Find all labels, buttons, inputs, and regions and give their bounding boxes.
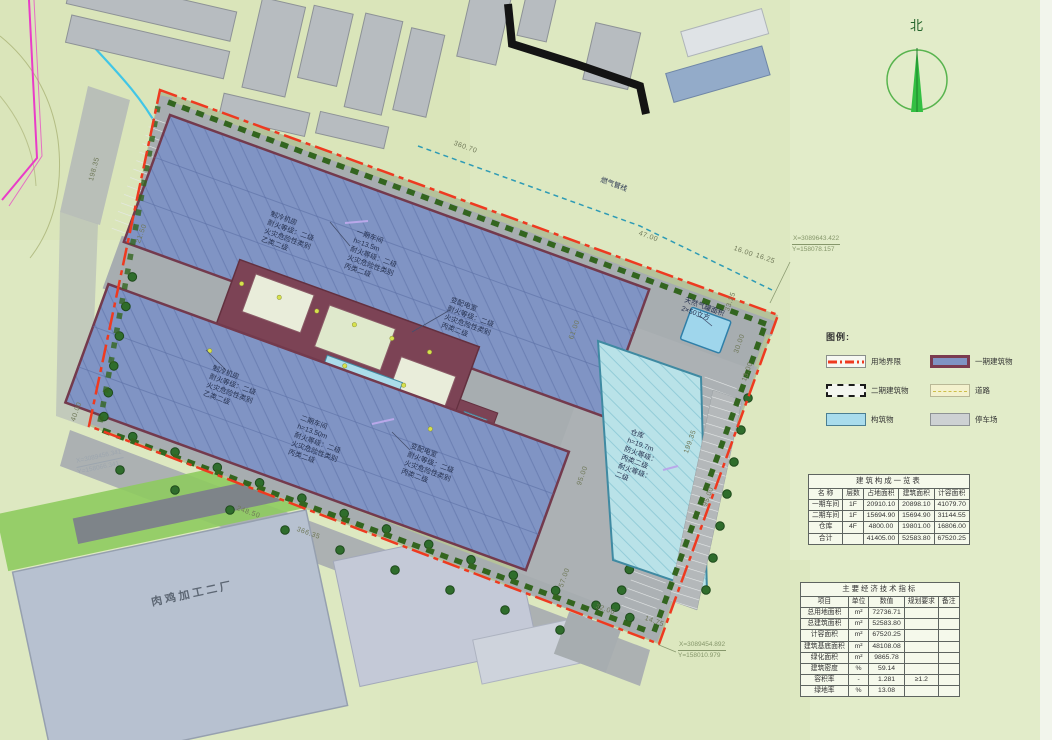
- table-cell: [938, 630, 959, 641]
- table-cell: 41405.00: [863, 533, 898, 544]
- table-cell: 16806.00: [934, 522, 969, 533]
- table-cell: [938, 674, 959, 685]
- table-header-cell: 占地面积: [863, 488, 898, 499]
- north-label: 北: [910, 18, 923, 33]
- table-cell: 20898.10: [899, 500, 934, 511]
- table-header-cell: 建筑面积: [899, 488, 934, 499]
- table-cell: 仓库: [809, 522, 843, 533]
- legend-label: 构筑物: [871, 414, 894, 425]
- table-cell: [904, 619, 938, 630]
- coordinate-y: Y=158078.157: [792, 246, 834, 253]
- table-cell: [904, 686, 938, 697]
- site-plan: 制冷机房 耐火等级：二级 火灾危险性类别 乙类二级 一期车间 h=13.5m 耐…: [0, 0, 1052, 740]
- legend-item-phase1: 一期建筑物: [930, 355, 1034, 368]
- table-cell: 总建筑面积: [801, 619, 849, 630]
- phase2-swatch: [826, 384, 866, 397]
- legend-item-structure: 构筑物: [826, 413, 930, 426]
- table-cell: 19801.00: [899, 522, 934, 533]
- table-cell: [938, 641, 959, 652]
- table-header-cell: 计容面积: [934, 488, 969, 499]
- table-cell: 1F: [843, 511, 864, 522]
- table-cell: %: [848, 663, 869, 674]
- phase1-swatch: [930, 355, 970, 368]
- table-cell: 52583.80: [869, 619, 904, 630]
- table-cell: ≥1.2: [904, 674, 938, 685]
- legend-label: 道路: [975, 385, 990, 396]
- table-cell: 67520.25: [869, 630, 904, 641]
- table-cell: 计容面积: [801, 630, 849, 641]
- table-cell: 59.14: [869, 663, 904, 674]
- table-cell: 绿地率: [801, 686, 849, 697]
- table-cell: %: [848, 686, 869, 697]
- table-cell: 52583.80: [899, 533, 934, 544]
- table-cell: 4800.00: [863, 522, 898, 533]
- table-cell: 绿化面积: [801, 652, 849, 663]
- table-cell: [843, 533, 864, 544]
- table-cell: 20910.10: [863, 500, 898, 511]
- legend-label: 一期建筑物: [975, 356, 1013, 367]
- table-cell: 48108.08: [869, 641, 904, 652]
- building-composition-table: 建筑构成一览表名 称层数占地面积建筑面积计容面积一期车间1F20910.1020…: [808, 474, 970, 545]
- legend-item-road: 道路: [930, 384, 1034, 397]
- road-swatch: [930, 384, 970, 397]
- table-cell: [938, 608, 959, 619]
- table-header-cell: 备注: [938, 596, 959, 607]
- table-cell: 41079.70: [934, 500, 969, 511]
- table-cell: 合计: [809, 533, 843, 544]
- table-header-cell: 项目: [801, 596, 849, 607]
- table-header-cell: 层数: [843, 488, 864, 499]
- coordinate-callout-northeast: X=3089643.422 Y=158078.157: [792, 234, 840, 255]
- coordinate-callout-south: X=3089454.892 Y=158010.979: [678, 640, 726, 661]
- table-cell: 4F: [843, 522, 864, 533]
- table-cell: [938, 686, 959, 697]
- table-cell: 15694.90: [899, 511, 934, 522]
- table-cell: [938, 619, 959, 630]
- table-cell: [904, 630, 938, 641]
- table-cell: 建筑密度: [801, 663, 849, 674]
- table-cell: m²: [848, 641, 869, 652]
- legend-item-boundary: 用地界限: [826, 355, 930, 368]
- table-cell: [904, 641, 938, 652]
- table-header-cell: 规划要求: [904, 596, 938, 607]
- legend-item-parking: 停车场: [930, 413, 1034, 426]
- table-cell: m²: [848, 619, 869, 630]
- table-cell: [938, 663, 959, 674]
- north-arrow: 北: [878, 14, 956, 120]
- table-cell: 1F: [843, 500, 864, 511]
- table-cell: 13.08: [869, 686, 904, 697]
- table-cell: 一期车间: [809, 500, 843, 511]
- table-cell: m²: [848, 630, 869, 641]
- table-cell: m²: [848, 608, 869, 619]
- table-cell: 72736.71: [869, 608, 904, 619]
- table-cell: 9865.78: [869, 652, 904, 663]
- table-cell: [938, 652, 959, 663]
- coordinate-y: Y=158010.979: [678, 652, 720, 659]
- table-cell: -: [848, 674, 869, 685]
- table-cell: 二期车间: [809, 511, 843, 522]
- parking-swatch: [930, 413, 970, 426]
- boundary-swatch: [826, 355, 866, 368]
- table-header-cell: 名 称: [809, 488, 843, 499]
- table-title: 建筑构成一览表: [809, 475, 970, 489]
- table-cell: 容积率: [801, 674, 849, 685]
- table-header-cell: 数值: [869, 596, 904, 607]
- table-cell: m²: [848, 652, 869, 663]
- legend-title: 图例:: [826, 330, 1038, 343]
- table-cell: 1.281: [869, 674, 904, 685]
- coordinate-x: X=3089454.892: [678, 640, 726, 651]
- table-cell: 建筑基底面积: [801, 641, 849, 652]
- table-cell: [904, 652, 938, 663]
- legend-item-phase2: 二期建筑物: [826, 384, 930, 397]
- structure-swatch: [826, 413, 866, 426]
- legend: 图例: 用地界限 一期建筑物 二期建筑物 道路 构筑物 停车场: [826, 330, 1038, 426]
- table-cell: [904, 663, 938, 674]
- table-cell: 15694.90: [863, 511, 898, 522]
- legend-label: 停车场: [975, 414, 998, 425]
- table-header-cell: 单位: [848, 596, 869, 607]
- table-cell: [904, 608, 938, 619]
- coordinate-x: X=3089643.422: [792, 234, 840, 245]
- table-cell: 31144.55: [934, 511, 969, 522]
- legend-label: 用地界限: [871, 356, 901, 367]
- table-cell: 总用地面积: [801, 608, 849, 619]
- table-title: 主要经济技术指标: [801, 583, 960, 597]
- table-cell: 67520.25: [934, 533, 969, 544]
- legend-label: 二期建筑物: [871, 385, 909, 396]
- economic-indicator-table: 主要经济技术指标项目单位数值规划要求备注总用地面积m²72736.71总建筑面积…: [800, 582, 960, 697]
